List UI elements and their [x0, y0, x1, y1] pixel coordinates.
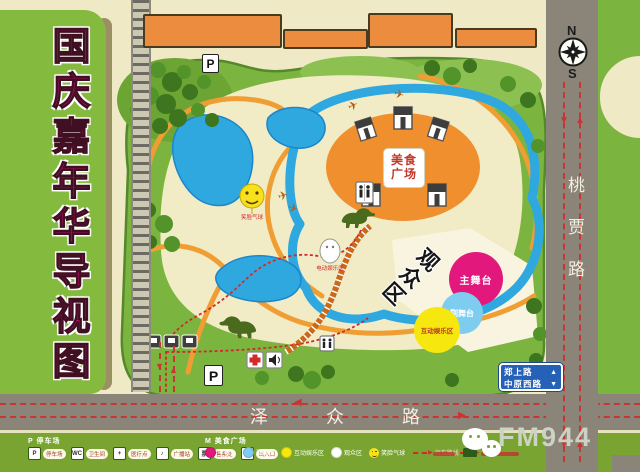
mascot-label: 电动娱乐区 [316, 264, 344, 272]
route-dash-icon [413, 452, 427, 454]
restroom-icon: WC [71, 447, 84, 460]
legend-item: WC卫生间 [71, 447, 109, 460]
page-title: 国庆嘉年华导视图 [22, 26, 86, 392]
railroad-track [131, 0, 151, 392]
main-stage-dot [205, 447, 216, 458]
route-arrow-icon: ▶ [428, 449, 433, 456]
traffic-arrow-up: ▲ [575, 116, 585, 126]
legend-zone: 互动娱乐区 [281, 447, 324, 458]
legend-item-label: 广播站 [171, 449, 194, 459]
parking-sign: P [204, 365, 223, 386]
parking-icon: P [28, 447, 41, 460]
restroom-icon [356, 182, 373, 203]
legend-zone-label: 主舞台 [218, 448, 236, 457]
interactive-zone-circle: 互动娱乐区 [414, 307, 460, 353]
direction-sign-line2: 中原西路 [504, 378, 542, 390]
food-plaza-text: 美食广场 [391, 154, 417, 182]
building [368, 13, 453, 48]
legend-item-label: 医疗点 [128, 449, 151, 459]
legend-item-label: 停车场 [43, 449, 66, 459]
legend-zone-label: 副舞台 [256, 448, 274, 457]
smiley-balloon-icon: 笑脸气球 [240, 184, 264, 221]
direction-sign: 郑上路▲ 中原西路▼ [499, 363, 563, 391]
legend-zone: 笑脸气球 [369, 448, 405, 458]
entrance-arrow-down: ▼ [155, 362, 164, 371]
traffic-arrow-down: ▼ [559, 116, 569, 126]
compass-rose-icon [558, 37, 588, 67]
balloon-label: 笑脸气球 [241, 213, 264, 221]
legend-zone-label: 笑脸气球 [381, 448, 405, 457]
station-logo: FM944 [498, 422, 592, 453]
medical-icon: + [113, 447, 126, 460]
audience-dot [331, 447, 342, 458]
legend-left-header: P 停车场 [28, 436, 61, 446]
down-arrow-icon: ▼ [550, 381, 558, 388]
building [143, 14, 282, 48]
compass-north-label: N [567, 23, 576, 38]
legend-zone: 副舞台 [243, 447, 274, 458]
interactive-dot [281, 447, 292, 458]
footer-fine-print [433, 452, 455, 456]
up-arrow-icon: ▲ [550, 369, 558, 376]
legend-zone-label: 互动娱乐区 [294, 448, 324, 457]
restroom-icon [320, 336, 334, 351]
legend-zone: 主舞台 [205, 447, 236, 458]
ticket-booth-icons [146, 335, 197, 348]
medical-icon [247, 352, 263, 368]
direction-sign-line1: 郑上路 [504, 366, 533, 378]
road-name-taojia: 桃贾路 [562, 176, 587, 302]
entrance-arrow-up: ▲ [169, 366, 178, 375]
road-name-zezhong: 泽众路 [250, 403, 478, 429]
parking-sign: P [202, 54, 219, 73]
building [283, 29, 368, 49]
compass-south-label: S [568, 66, 577, 81]
legend-item: +医疗点 [113, 447, 151, 460]
food-plaza-label: 美食广场 [383, 148, 425, 188]
legend-item: ♪广播站 [156, 447, 194, 460]
sub-stage-dot [243, 447, 254, 458]
broadcast-icon: ♪ [156, 447, 169, 460]
building [455, 28, 537, 48]
legend-item: P停车场 [28, 447, 66, 460]
carnival-guide-map: ✈ ✈ ✈ ✈ 笑脸气球 电动娱乐区 [0, 0, 640, 472]
legend-zone: 观众区 [331, 447, 362, 458]
legend-right-header: M 美食广场 [205, 436, 247, 446]
legend-item-label: 卫生间 [86, 449, 109, 459]
speaker-icon [266, 352, 282, 368]
smiley-icon [369, 448, 379, 458]
legend-zone-label: 观众区 [344, 448, 362, 457]
road-corner [612, 455, 640, 472]
